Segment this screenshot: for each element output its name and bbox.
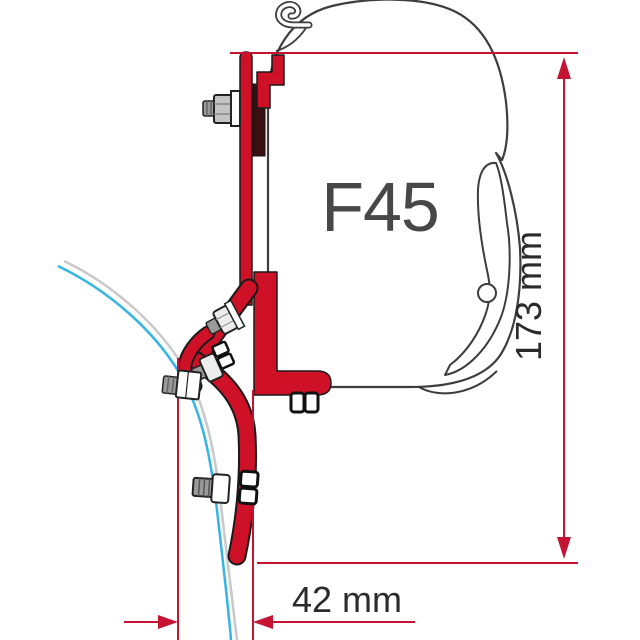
- arrow-left-icon: [253, 615, 273, 629]
- wall-line-gray: [64, 261, 237, 640]
- diagram-svg: F45 173 mm 42 mm: [0, 0, 640, 640]
- product-label: F45: [321, 168, 439, 246]
- arrow-right-icon: [158, 615, 178, 629]
- bolt-lower-leg: [192, 468, 258, 505]
- arrow-up-icon: [557, 57, 571, 79]
- bracket-rail: [240, 52, 252, 305]
- bolt-wall-mount: [162, 369, 202, 400]
- depth-dimension-label: 42 mm: [292, 579, 402, 620]
- arrow-down-icon: [557, 537, 571, 559]
- wall-line-cyan: [58, 266, 231, 640]
- bolt-rail: [203, 91, 240, 126]
- knob-fasteners-foot: [291, 393, 318, 412]
- awning-adapter-diagram: F45 173 mm 42 mm: [0, 0, 640, 640]
- height-dimension-label: 173 mm: [508, 231, 549, 361]
- van-wall-profile: [58, 261, 237, 640]
- bracket-lower-leg: [197, 361, 248, 556]
- lip-knob-detail: [478, 284, 496, 302]
